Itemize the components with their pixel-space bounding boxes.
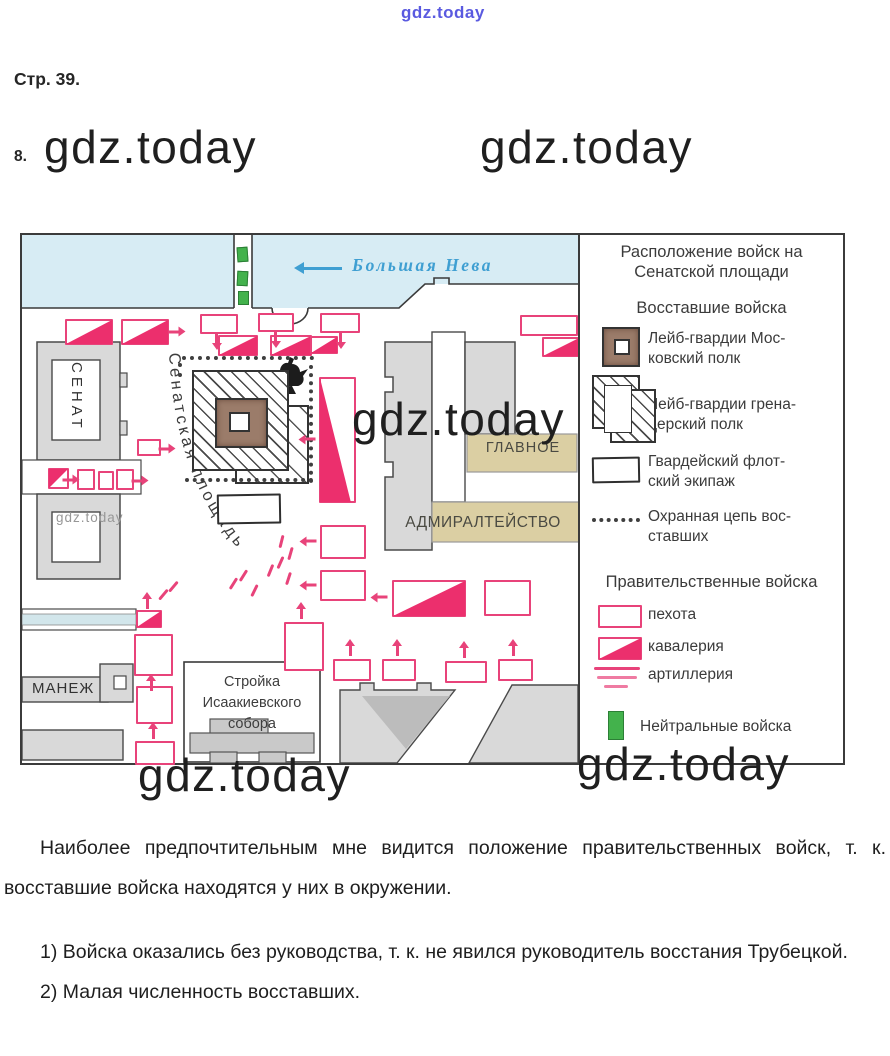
arrow-up-icon <box>506 640 520 657</box>
infantry-symbol <box>333 659 371 681</box>
arrow-up-icon <box>294 603 308 620</box>
infantry-symbol <box>98 471 114 490</box>
arrow-left-icon <box>301 579 318 593</box>
manege-label: МАНЕЖ <box>32 680 94 697</box>
arrow-up-icon <box>343 640 357 657</box>
answer-item-1: 1) Войска оказались без руководства, т. … <box>4 932 886 972</box>
neutral-troops-symbol <box>238 291 249 305</box>
arrow-up-icon <box>144 675 158 692</box>
cavalry-symbol <box>65 319 113 345</box>
infantry-symbol <box>520 315 578 336</box>
artillery-legend-icon <box>594 667 640 670</box>
river-label: Большая Нева <box>352 255 493 276</box>
watermark-heading-right: gdz.today <box>480 120 693 174</box>
infantry-symbol <box>284 622 324 671</box>
infantry-symbol <box>484 580 531 616</box>
legend-title-line1: Расположение войск на <box>580 243 843 262</box>
arrow-up-icon <box>146 723 160 740</box>
answer-block: Наиболее предпочтительным мне видится по… <box>4 828 886 1012</box>
arrow-left-icon <box>372 591 389 605</box>
neutral-troops-symbol <box>236 247 248 263</box>
bottom-right-building <box>469 685 578 763</box>
barracks-band <box>22 730 123 760</box>
arrow-right-icon <box>62 473 79 487</box>
naval-crew-symbol <box>217 493 282 524</box>
cavalry-symbol <box>121 319 169 345</box>
legend-government-header: Правительственные войска <box>580 573 843 592</box>
cavalry-symbol <box>392 580 466 617</box>
senate-label: СЕНАТ <box>68 362 85 442</box>
cavalry-symbol <box>218 335 258 356</box>
naval-crew-legend-icon <box>592 457 640 484</box>
cavalry-symbol <box>136 610 162 628</box>
arrow-left-icon <box>301 535 318 549</box>
infantry-symbol <box>320 570 366 601</box>
monument-marker <box>229 412 250 432</box>
cavalry-legend-icon <box>598 637 642 660</box>
answer-item-2: 2) Малая численность восставших. <box>4 972 886 1012</box>
security-chain-dots <box>185 478 313 482</box>
infantry-symbol <box>134 634 173 676</box>
watermark-bottom-right: gdz.today <box>577 737 790 791</box>
cavalry-symbol <box>319 377 356 503</box>
arrow-right-icon <box>131 474 148 488</box>
senate-square-map: Сенатская площадь Большая Нева СЕНАТ ГЛА… <box>20 233 845 765</box>
arrow-down-icon <box>334 331 348 348</box>
arrow-down-icon <box>210 332 224 349</box>
arrow-down-icon <box>269 330 283 347</box>
arrow-up-icon <box>140 593 154 610</box>
admiralty-label: АДМИРАЛТЕЙСТВО <box>388 514 578 532</box>
watermark-top: gdz.today <box>401 3 485 23</box>
arrow-up-icon <box>457 642 471 659</box>
arrow-right-icon <box>158 442 175 456</box>
watermark-map-small: gdz.today <box>56 510 124 525</box>
page-label: Стр. 39. <box>14 69 80 90</box>
arrow-left-icon <box>300 433 317 447</box>
security-chain-legend-icon <box>592 518 640 522</box>
river-flow-arrow-icon <box>294 262 342 275</box>
task-number: 8. <box>14 148 27 166</box>
infantry-symbol <box>320 313 360 333</box>
watermark-bottom-left: gdz.today <box>138 748 351 802</box>
infantry-symbol <box>77 469 95 490</box>
embankment-raised <box>399 284 578 308</box>
watermark-heading-left: gdz.today <box>44 120 257 174</box>
arrow-right-icon <box>168 325 185 339</box>
legend-rebels-header: Восставшие войска <box>580 299 843 318</box>
construction-label: Стройка Исаакиевского собора <box>186 672 318 735</box>
infantry-symbol <box>200 314 238 334</box>
infantry-symbol <box>498 659 533 681</box>
page: gdz.today Стр. 39. 8. gdz.today gdz.toda… <box>0 0 890 1056</box>
cavalry-symbol <box>542 337 580 357</box>
neutral-legend-icon <box>608 711 624 740</box>
legend-title-line2: Сенатской площади <box>580 263 843 282</box>
infantry-symbol <box>320 525 366 559</box>
security-chain-dots <box>309 365 313 483</box>
answer-paragraph: Наиболее предпочтительным мне видится по… <box>4 828 886 908</box>
infantry-symbol <box>445 661 487 683</box>
arrow-up-icon <box>390 640 404 657</box>
security-chain-dots <box>178 363 182 377</box>
security-chain-dots <box>182 356 314 360</box>
infantry-legend-icon <box>598 605 642 628</box>
neutral-troops-symbol <box>237 271 249 287</box>
watermark-map-center: gdz.today <box>352 392 565 446</box>
infantry-symbol <box>382 659 416 681</box>
map-legend: Расположение войск на Сенатской площади … <box>578 235 843 763</box>
